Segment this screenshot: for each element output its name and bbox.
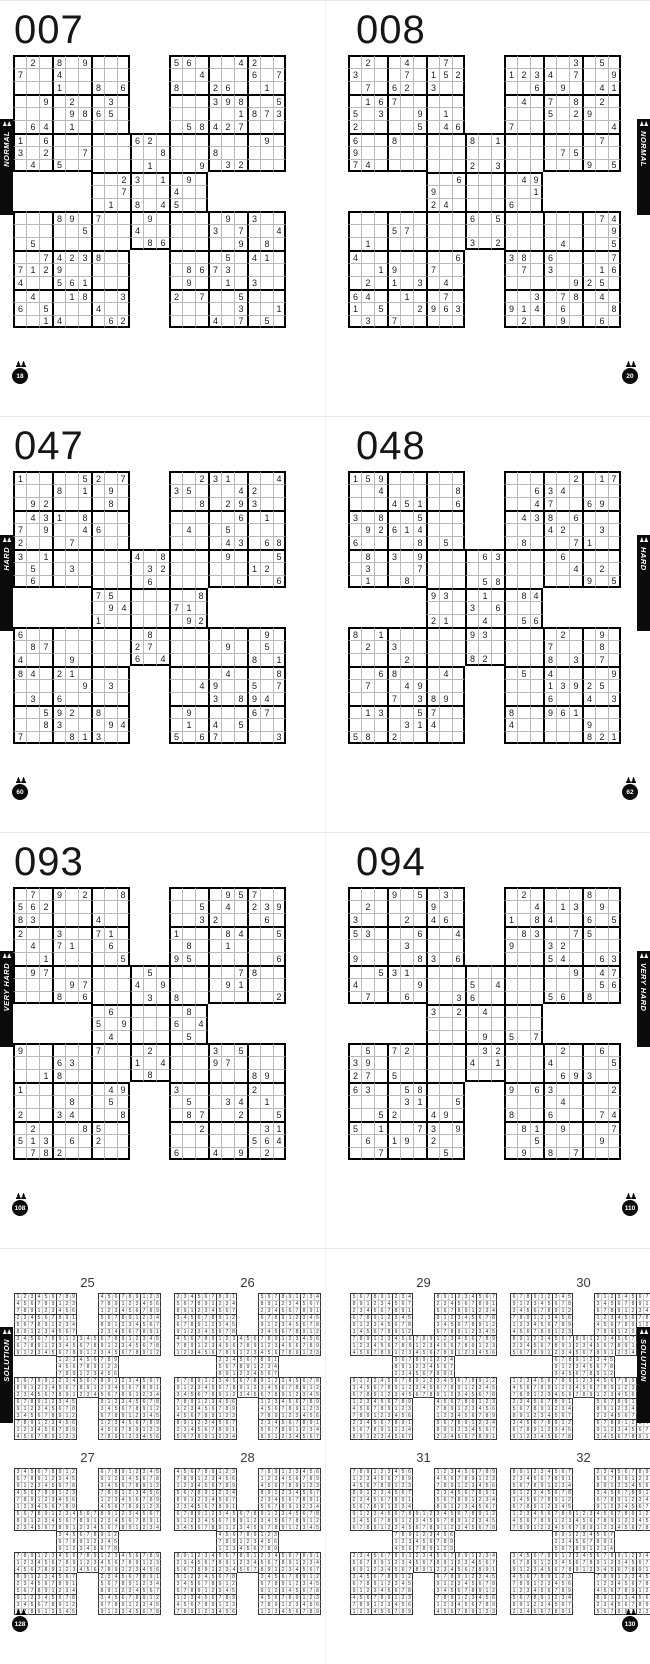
sudoku-cell (52, 653, 65, 666)
solution-cell (251, 1608, 258, 1615)
solution-cell (154, 1356, 161, 1363)
solution-cell: 5 (56, 1328, 63, 1335)
solution-cell: 6 (314, 1335, 321, 1342)
sudoku-cell: 1 (130, 1056, 143, 1069)
solution-cell (174, 1531, 181, 1538)
sudoku-cell: 6 (169, 1017, 182, 1030)
solution-cell: 6 (364, 1405, 371, 1412)
solution-cell: 4 (126, 1608, 133, 1615)
solution-cell: 8 (406, 1377, 413, 1384)
solution-cell: 8 (63, 1293, 70, 1300)
sudoku-cell: 5 (348, 731, 361, 744)
sudoku-cell (582, 1108, 595, 1121)
sudoku-cell: 5 (182, 952, 195, 965)
solution-cell: 5 (49, 1482, 56, 1489)
solution-cell: 1 (399, 1384, 406, 1391)
sudoku-cell (452, 692, 465, 705)
solution-cell (126, 1363, 133, 1370)
solution-block-26: 26 2345678915678912345678912348912345678… (174, 1275, 321, 1440)
solution-cell: 6 (70, 1496, 77, 1503)
solution-cell: 1 (21, 1482, 28, 1489)
sudoku-cell: 6 (465, 211, 478, 224)
solution-cell: 1 (314, 1496, 321, 1503)
sudoku-cell (156, 887, 169, 900)
sudoku-cell (273, 55, 286, 68)
sudoku-cell (413, 1056, 426, 1069)
solution-cell: 5 (455, 1300, 462, 1307)
solution-cell: 6 (230, 1475, 237, 1482)
sudoku-cell: 7 (247, 887, 260, 900)
sudoku-cell: 4 (39, 120, 52, 133)
sudoku-cell (595, 991, 608, 1004)
solution-cell (455, 1363, 462, 1370)
sudoku-cell (413, 484, 426, 497)
sudoku-cell (78, 185, 91, 198)
solution-cell: 1 (209, 1489, 216, 1496)
solution-cell: 1 (209, 1300, 216, 1307)
sudoku-cell: 9 (182, 276, 195, 289)
sudoku-cell: 4 (13, 653, 26, 666)
solution-cell: 6 (28, 1433, 35, 1440)
solution-cell: 4 (406, 1370, 413, 1377)
solution-cell: 3 (434, 1377, 441, 1384)
solution-cell: 8 (56, 1391, 63, 1398)
sudoku-cell (582, 172, 595, 185)
solution-cell: 4 (399, 1391, 406, 1398)
solution-cell: 5 (21, 1489, 28, 1496)
solution-cell (413, 1300, 420, 1307)
sudoku-cell (130, 705, 143, 718)
solution-cell (237, 1328, 244, 1335)
solution-cell: 2 (265, 1608, 272, 1615)
sudoku-cell: 4 (361, 159, 374, 172)
sudoku-cell: 7 (413, 562, 426, 575)
solution-cell: 3 (126, 1321, 133, 1328)
sudoku-cell: 7 (234, 315, 247, 328)
solution-cell (119, 1356, 126, 1363)
solution-cell: 1 (223, 1391, 230, 1398)
solution-cell: 9 (510, 1300, 517, 1307)
solution-cell: 1 (202, 1321, 209, 1328)
sudoku-cell: 7 (569, 68, 582, 81)
sudoku-cell (556, 1004, 569, 1017)
solution-cell: 5 (209, 1328, 216, 1335)
sudoku-cell (247, 523, 260, 536)
sudoku-cell (478, 497, 491, 510)
sudoku-cell (195, 172, 208, 185)
solution-cell: 2 (98, 1573, 105, 1580)
sudoku-cell (543, 1017, 556, 1030)
sudoku-cell (426, 523, 439, 536)
page-093: ♟♟ VERY HARD 093 79289575625423983432623… (0, 833, 325, 1248)
sudoku-cell (143, 549, 156, 562)
sudoku-cell (273, 1147, 286, 1160)
sudoku-cell (504, 146, 517, 159)
solution-cell: 9 (70, 1503, 77, 1510)
solution-cell (251, 1580, 258, 1587)
solution-cell: 3 (237, 1391, 244, 1398)
solution-cell: 9 (56, 1335, 63, 1342)
sudoku-cell (400, 1069, 413, 1082)
sudoku-cell (104, 900, 117, 913)
sudoku-cell (543, 471, 556, 484)
solution-cell: 9 (286, 1559, 293, 1566)
sudoku-cell (221, 133, 234, 146)
solution-cell: 5 (98, 1524, 105, 1531)
sudoku-cell: 2 (208, 913, 221, 926)
sudoku-cell: 2 (234, 1108, 247, 1121)
sudoku-cell (247, 1095, 260, 1108)
sudoku-cell (195, 302, 208, 315)
sudoku-cell (247, 471, 260, 484)
sudoku-cell: 8 (247, 1069, 260, 1082)
sudoku-cell (426, 1043, 439, 1056)
pawns-icon: ♟♟ (639, 122, 648, 129)
sudoku-cell: 9 (595, 1134, 608, 1147)
sudoku-cell (400, 549, 413, 562)
solution-cell: 3 (413, 1384, 420, 1391)
solution-cell: 1 (98, 1363, 105, 1370)
solution-cell: 6 (251, 1335, 258, 1342)
sudoku-cell (52, 1121, 65, 1134)
sudoku-cell (543, 614, 556, 627)
solution-cell: 8 (399, 1342, 406, 1349)
solution-cell: 4 (490, 1307, 497, 1314)
solution-cell: 1 (300, 1405, 307, 1412)
sudoku-cell (169, 575, 182, 588)
solution-cell (77, 1601, 84, 1608)
sudoku-cell (491, 289, 504, 302)
sudoku-cell: 8 (195, 120, 208, 133)
solution-cell: 5 (195, 1503, 202, 1510)
sudoku-cell: 3 (478, 1043, 491, 1056)
sudoku-cell (117, 1004, 130, 1017)
solution-cell: 9 (307, 1552, 314, 1559)
sudoku-cell (221, 1108, 234, 1121)
sudoku-cell (387, 913, 400, 926)
solution-cell: 3 (476, 1384, 483, 1391)
sudoku-cell (556, 614, 569, 627)
sudoku-cell (543, 237, 556, 250)
sudoku-cell (491, 1108, 504, 1121)
solution-cell: 1 (286, 1391, 293, 1398)
sudoku-cell (543, 588, 556, 601)
sudoku-cell (169, 315, 182, 328)
solution-cell: 4 (56, 1307, 63, 1314)
sudoku-cell (374, 133, 387, 146)
sudoku-cell: 7 (608, 965, 621, 978)
solution-cell: 2 (385, 1314, 392, 1321)
sudoku-cell (208, 926, 221, 939)
sudoku-cell (169, 653, 182, 666)
solution-cell: 1 (314, 1307, 321, 1314)
solution-cell: 7 (406, 1300, 413, 1307)
sudoku-cell (491, 627, 504, 640)
sudoku-cell (439, 718, 452, 731)
sudoku-cell (465, 315, 478, 328)
solution-cell: 3 (223, 1300, 230, 1307)
solution-cell: 6 (126, 1384, 133, 1391)
sudoku-cell (608, 510, 621, 523)
sudoku-cell (273, 601, 286, 614)
solution-cell: 6 (181, 1489, 188, 1496)
sudoku-cell (361, 250, 374, 263)
sudoku-cell: 1 (361, 237, 374, 250)
sudoku-cell: 4 (530, 302, 543, 315)
solution-cell: 6 (434, 1384, 441, 1391)
sudoku-cell (361, 1017, 374, 1030)
sudoku-cell (91, 1056, 104, 1069)
sudoku-cell: 6 (260, 913, 273, 926)
page-badge: ♟♟ 18 (11, 361, 29, 384)
sudoku-cell (143, 55, 156, 68)
sudoku-cell (195, 640, 208, 653)
sudoku-cell (221, 1004, 234, 1017)
solution-cell: 2 (545, 1293, 552, 1300)
sudoku-cell: 4 (452, 926, 465, 939)
solution-cell: 5 (91, 1335, 98, 1342)
solution-cell: 4 (98, 1559, 105, 1566)
puzzle-title: 007 (0, 1, 325, 51)
sudoku-cell (52, 1030, 65, 1043)
sudoku-cell (374, 640, 387, 653)
solution-cell: 7 (181, 1587, 188, 1594)
sudoku-cell (208, 588, 221, 601)
sudoku-cell (65, 1004, 78, 1017)
sudoku-cell (387, 302, 400, 315)
solution-cell: 7 (105, 1545, 112, 1552)
solution-cell: 8 (188, 1587, 195, 1594)
solution-cell: 8 (314, 1377, 321, 1384)
sudoku-cell (374, 250, 387, 263)
solution-cell: 9 (209, 1468, 216, 1475)
sudoku-cell (208, 952, 221, 965)
solution-cell: 4 (357, 1384, 364, 1391)
solution-cell: 4 (385, 1300, 392, 1307)
sudoku-cell (260, 185, 273, 198)
solution-cell: 1 (434, 1412, 441, 1419)
solution-cell: 2 (21, 1559, 28, 1566)
solution-cell: 4 (63, 1342, 70, 1349)
sudoku-cell (182, 731, 195, 744)
sudoku-cell (517, 185, 530, 198)
sudoku-cell (556, 575, 569, 588)
solution-cell: 4 (223, 1510, 230, 1517)
solution-cell: 6 (392, 1321, 399, 1328)
solution-cell: 6 (84, 1510, 91, 1517)
sudoku-cell: 4 (169, 185, 182, 198)
sudoku-cell (143, 198, 156, 211)
sudoku-cell (234, 731, 247, 744)
sudoku-cell (582, 510, 595, 523)
sudoku-cell (530, 991, 543, 1004)
solution-cell: 2 (98, 1328, 105, 1335)
solution-cell (84, 1608, 91, 1615)
sudoku-cell (247, 94, 260, 107)
sudoku-cell: 9 (117, 1082, 130, 1095)
sudoku-cell: 8 (39, 718, 52, 731)
sudoku-cell (517, 731, 530, 744)
page-number: 108 (15, 1205, 26, 1212)
sudoku-cell (13, 1095, 26, 1108)
sudoku-cell (130, 1095, 143, 1108)
solution-cell: 6 (42, 1580, 49, 1587)
sudoku-cell (104, 146, 117, 159)
sudoku-cell (413, 68, 426, 81)
solution-cell: 5 (209, 1384, 216, 1391)
sudoku-cell (413, 640, 426, 653)
sudoku-cell (169, 1108, 182, 1121)
solution-cell: 2 (230, 1314, 237, 1321)
sudoku-cell (543, 549, 556, 562)
solution-cell (14, 1538, 21, 1545)
sudoku-cell (426, 939, 439, 952)
solution-cell (49, 1545, 56, 1552)
sudoku-cell (247, 1043, 260, 1056)
solution-cell: 3 (188, 1349, 195, 1356)
sudoku-cell (221, 146, 234, 159)
sudoku-cell: 4 (556, 484, 569, 497)
sudoku-cell: 8 (195, 588, 208, 601)
solution-cell: 7 (28, 1510, 35, 1517)
sudoku-cell (26, 952, 39, 965)
sudoku-cell (104, 692, 117, 705)
solution-cell: 3 (251, 1538, 258, 1545)
solution-cell: 2 (399, 1349, 406, 1356)
solution-cell: 4 (209, 1552, 216, 1559)
sudoku-cell: 8 (247, 965, 260, 978)
sudoku-cell (91, 549, 104, 562)
sudoku-cell (234, 666, 247, 679)
sudoku-cell (556, 666, 569, 679)
solution-cell: 2 (154, 1594, 161, 1601)
solution-cell: 3 (35, 1349, 42, 1356)
sudoku-cell (273, 1095, 286, 1108)
sudoku-cell (52, 198, 65, 211)
sudoku-cell (400, 237, 413, 250)
sudoku-cell (52, 133, 65, 146)
sudoku-cell (117, 666, 130, 679)
solution-cell: 1 (98, 1552, 105, 1559)
sudoku-cell (104, 289, 117, 302)
solution-cell (28, 1370, 35, 1377)
solution-cell: 4 (314, 1503, 321, 1510)
sudoku-cell: 7 (569, 1147, 582, 1160)
solution-cell: 5 (216, 1307, 223, 1314)
solution-cell: 2 (258, 1363, 265, 1370)
sudoku-cell (117, 575, 130, 588)
sudoku-cell: 6 (530, 1082, 543, 1095)
sudoku-cell: 5 (52, 159, 65, 172)
sudoku-cell: 7 (39, 250, 52, 263)
solution-cell: 9 (251, 1342, 258, 1349)
solution-cell: 6 (35, 1335, 42, 1342)
solution-cell: 3 (476, 1328, 483, 1335)
solution-cell: 2 (49, 1608, 56, 1615)
solution-cell: 5 (56, 1517, 63, 1524)
solution-cell: 9 (615, 1307, 622, 1314)
sudoku-cell: 5 (143, 965, 156, 978)
solution-cell: 2 (307, 1594, 314, 1601)
sudoku-cell (478, 1069, 491, 1082)
sudoku-cell (452, 237, 465, 250)
sudoku-cell (374, 1030, 387, 1043)
solution-cell: 6 (14, 1342, 21, 1349)
solution-cell: 5 (286, 1475, 293, 1482)
sudoku-cell (39, 107, 52, 120)
solution-cell (251, 1314, 258, 1321)
sudoku-cell (439, 510, 452, 523)
solution-cell: 2 (483, 1342, 490, 1349)
sudoku-cell (52, 614, 65, 627)
sudoku-cell (117, 705, 130, 718)
solution-cell: 5 (244, 1545, 251, 1552)
solution-cell: 3 (49, 1419, 56, 1426)
sudoku-cell (182, 926, 195, 939)
sudoku-cell (247, 588, 260, 601)
solution-cell: 4 (230, 1356, 237, 1363)
sudoku-cell (608, 588, 621, 601)
solution-cell: 8 (629, 1300, 636, 1307)
sudoku-cell (169, 900, 182, 913)
sudoku-cell: 5 (348, 107, 361, 120)
sudoku-cell (65, 55, 78, 68)
solution-cell (420, 1405, 427, 1412)
sudoku-cell (91, 1108, 104, 1121)
sudoku-cell: 6 (439, 302, 452, 315)
solution-cell: 8 (49, 1412, 56, 1419)
sudoku-cell: 8 (143, 627, 156, 640)
solution-cell: 1 (14, 1503, 21, 1510)
sudoku-cell (65, 627, 78, 640)
sudoku-cell: 3 (530, 510, 543, 523)
solution-cell (237, 1419, 244, 1426)
solution-cell (244, 1496, 251, 1503)
sudoku-cell (221, 952, 234, 965)
solution-cell: 1 (28, 1328, 35, 1335)
solution-cell: 4 (105, 1405, 112, 1412)
solution-cell: 5 (265, 1349, 272, 1356)
sudoku-cell (569, 588, 582, 601)
sudoku-cell: 4 (582, 692, 595, 705)
sudoku-cell (504, 497, 517, 510)
sudoku-cell: 4 (556, 1095, 569, 1108)
sudoku-cell (387, 705, 400, 718)
sudoku-cell (221, 68, 234, 81)
solution-cell (28, 1363, 35, 1370)
sudoku-cell (491, 1121, 504, 1134)
sudoku-cell (208, 900, 221, 913)
solution-cell (209, 1545, 216, 1552)
sudoku-cell (426, 224, 439, 237)
solution-cell: 4 (63, 1608, 70, 1615)
sudoku-cell (387, 926, 400, 939)
sudoku-cell (130, 107, 143, 120)
sudoku-cell (208, 1121, 221, 1134)
solution-cell: 4 (286, 1377, 293, 1384)
solution-cell: 8 (91, 1342, 98, 1349)
solution-cell: 4 (350, 1349, 357, 1356)
solution-cell: 6 (105, 1580, 112, 1587)
solution-cell: 2 (244, 1349, 251, 1356)
solution-cell: 9 (364, 1412, 371, 1419)
solution-cell: 5 (448, 1377, 455, 1384)
sudoku-cell (182, 536, 195, 549)
solution-cell (580, 1300, 587, 1307)
sudoku-cell (517, 913, 530, 926)
sudoku-cell (13, 55, 26, 68)
sudoku-cell (39, 653, 52, 666)
